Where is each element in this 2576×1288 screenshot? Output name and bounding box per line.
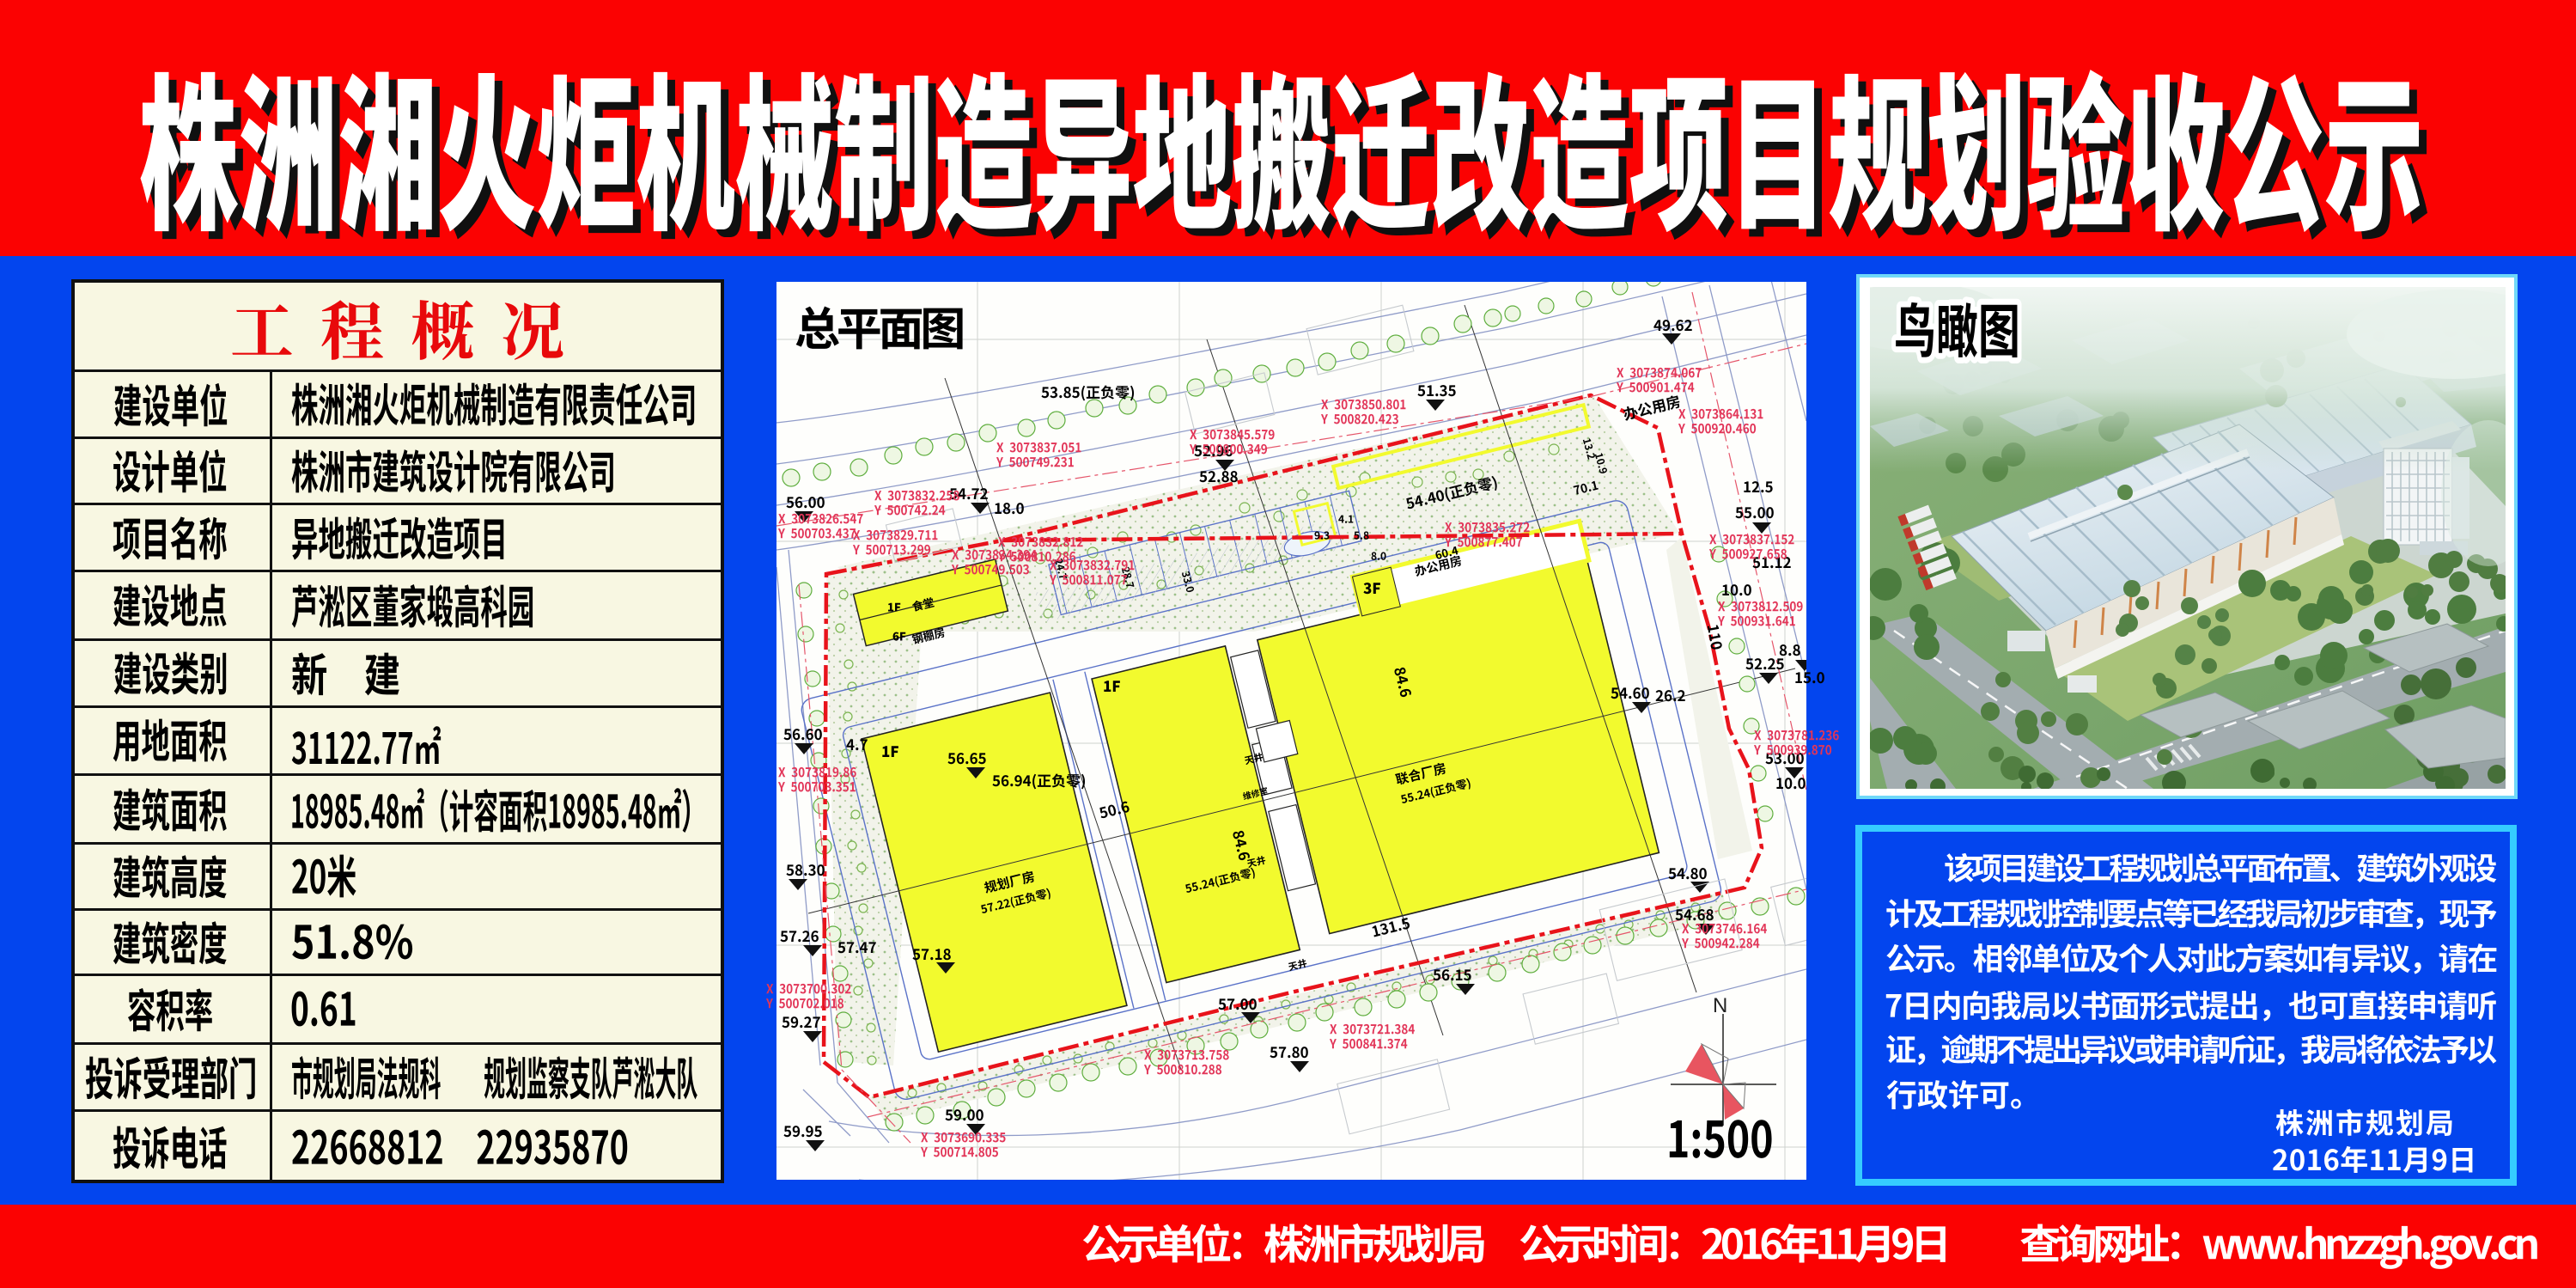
svg-text:N: N [1713, 994, 1727, 1017]
